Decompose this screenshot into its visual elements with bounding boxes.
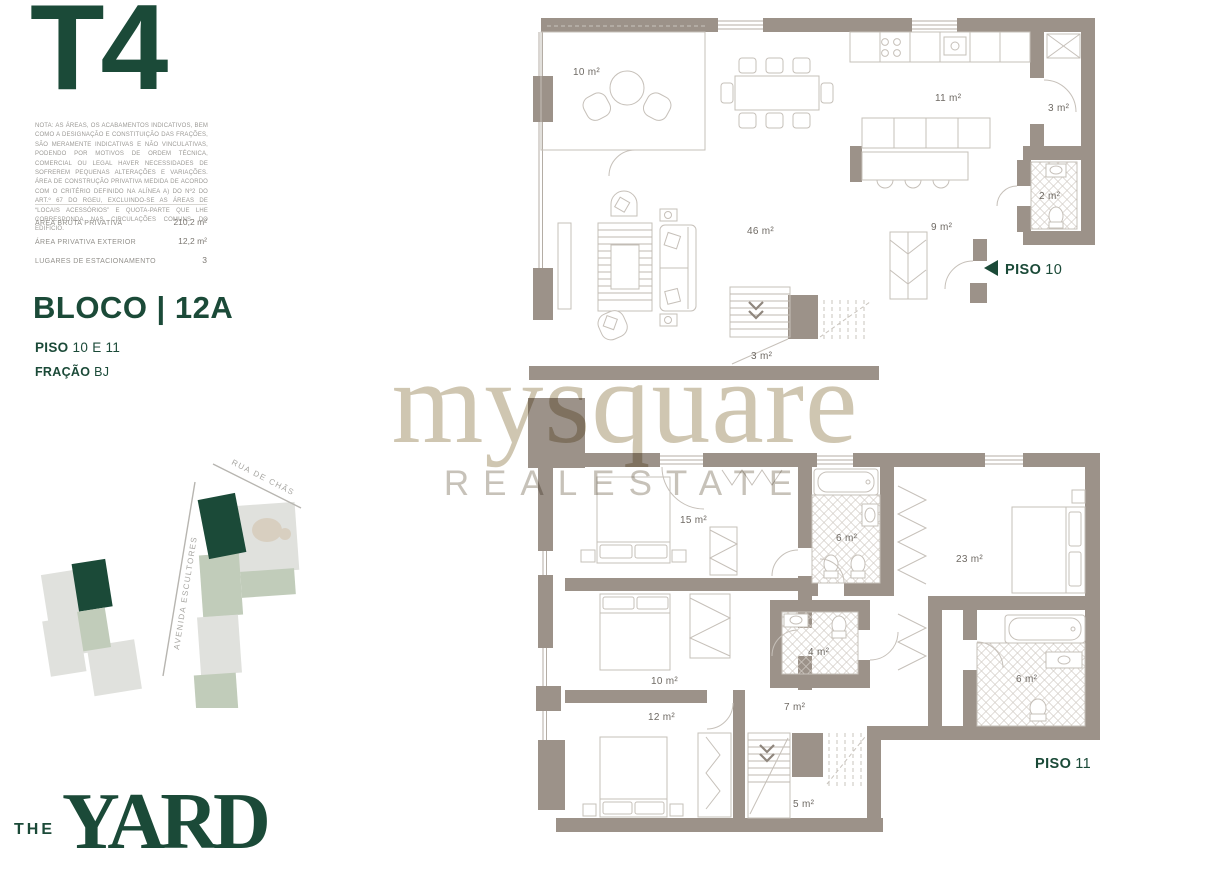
map-building-cluster-right bbox=[194, 493, 300, 708]
left-triangle-icon bbox=[984, 260, 998, 276]
area-label: ÁREA BRUTA PRIVATIVA bbox=[35, 220, 122, 227]
floorplan-sheet: T4 NOTA: AS ÁREAS, OS ACABAMENTOS INDICA… bbox=[0, 0, 1231, 881]
highlighted-building bbox=[198, 493, 247, 559]
map-street-avenida-escultores: AVENIDA ESCULTORES bbox=[163, 482, 199, 676]
room-label-living: 46 m² bbox=[747, 226, 774, 237]
divider-line bbox=[35, 204, 207, 205]
room-label-wc: 2 m² bbox=[1039, 191, 1061, 202]
armchair-icon bbox=[640, 90, 674, 124]
door-swing-arc bbox=[997, 186, 1017, 206]
stairs-up-icon bbox=[749, 302, 763, 318]
bedroom3: 12 m² bbox=[583, 703, 733, 817]
area-label: LUGARES DE ESTACIONAMENTO bbox=[35, 258, 156, 265]
floorplan-piso10: 10 m² 11 m² 3 m² bbox=[527, 6, 1107, 476]
room-label-bedroom2: 10 m² bbox=[651, 676, 678, 687]
room-label-stairs: 5 m² bbox=[793, 799, 815, 810]
side-table-icon bbox=[1072, 490, 1085, 503]
room-label-storage: 3 m² bbox=[1048, 103, 1070, 114]
door-swing-arc bbox=[609, 150, 635, 176]
wardrobe-icon bbox=[898, 614, 926, 670]
storage-room: 3 m² bbox=[1044, 34, 1080, 114]
piso10-marker: PISO10 bbox=[984, 260, 1062, 278]
room-label-bath2: 4 m² bbox=[808, 647, 830, 658]
bed-icon bbox=[1012, 507, 1085, 593]
room-label-ensuite: 6 m² bbox=[1016, 674, 1038, 685]
door-swing-arc bbox=[707, 703, 733, 729]
floor-line: PISO 10 E 11 bbox=[35, 340, 120, 355]
curtain-icon bbox=[722, 470, 782, 485]
wardrobe-icon bbox=[898, 486, 926, 584]
side-table-icon bbox=[670, 804, 683, 816]
living-room: 46 m² bbox=[558, 191, 774, 343]
floor-value: 10 E 11 bbox=[73, 340, 121, 355]
rug-icon bbox=[598, 223, 652, 311]
kitchen-counter-icon: 11 m² bbox=[850, 32, 1030, 188]
area-label: ÁREA PRIVATIVA EXTERIOR bbox=[35, 239, 136, 246]
block-title: BLOCO | 12A bbox=[33, 290, 233, 326]
area-value: 12,2 m² bbox=[178, 236, 207, 246]
room-label-bedroom1: 15 m² bbox=[680, 515, 707, 526]
entry-door-arc bbox=[945, 261, 973, 289]
bathtub-icon bbox=[814, 469, 878, 495]
bathroom2: 4 m² bbox=[782, 612, 898, 674]
floorplan-piso11: 15 m² 6 m² 23 m² bbox=[536, 446, 1106, 838]
brand-yard: YARD bbox=[62, 786, 266, 858]
piso10-marker-text: PISO10 bbox=[1005, 262, 1062, 278]
side-table-icon bbox=[660, 314, 677, 326]
site-map: RUA DE CHÃS AVENIDA ESCULTORES bbox=[35, 438, 305, 708]
fraction-line: FRAÇÃO BJ bbox=[35, 365, 109, 379]
toilet-icon bbox=[824, 555, 838, 573]
room-label-terrace: 10 m² bbox=[573, 67, 600, 78]
terrace: 10 m² bbox=[541, 26, 705, 176]
area-value: 210,2 m² bbox=[173, 217, 207, 227]
bathtub-icon bbox=[1005, 615, 1085, 643]
room-label-bedroom3: 12 m² bbox=[648, 712, 675, 723]
bathroom1: 6 m² bbox=[812, 469, 880, 583]
fraction-label: FRAÇÃO bbox=[35, 365, 90, 379]
bed-icon bbox=[597, 477, 670, 563]
floor-label: PISO bbox=[35, 340, 68, 355]
bidet-icon bbox=[851, 555, 865, 573]
sink-icon bbox=[862, 504, 878, 526]
hall: 9 m² bbox=[890, 222, 973, 299]
bed-icon bbox=[600, 594, 670, 670]
sink-icon bbox=[1046, 652, 1082, 668]
wardrobe-icon bbox=[698, 733, 731, 817]
area-row: ÁREA BRUTA PRIVATIVA 210,2 m² bbox=[35, 217, 207, 227]
wardrobe-icon bbox=[690, 594, 730, 658]
typology-title: T4 bbox=[30, 0, 164, 108]
door-swing-arc bbox=[772, 550, 798, 576]
ensuite-bathroom: 6 m² bbox=[977, 615, 1085, 726]
door-swing-arc bbox=[870, 632, 898, 660]
area-value: 3 bbox=[202, 255, 207, 265]
area-row: LUGARES DE ESTACIONAMENTO 3 bbox=[35, 255, 207, 265]
sideboard-icon bbox=[558, 223, 571, 309]
side-table-icon bbox=[581, 550, 595, 562]
dining-table-icon bbox=[721, 58, 833, 128]
side-table-icon bbox=[672, 550, 686, 562]
wc-room: 2 m² bbox=[997, 162, 1077, 229]
piso11-marker-text: PISO11 bbox=[1035, 756, 1091, 772]
room-label-stairs: 3 m² bbox=[751, 351, 773, 362]
side-table-icon bbox=[660, 209, 677, 221]
round-table-icon bbox=[610, 71, 644, 105]
sofa-icon bbox=[660, 225, 696, 311]
armchair-icon bbox=[580, 90, 614, 124]
room-label-master: 23 m² bbox=[956, 554, 983, 565]
bedroom2: 10 m² bbox=[600, 550, 798, 687]
bed-icon bbox=[600, 737, 667, 817]
room-label-hall: 7 m² bbox=[784, 702, 806, 713]
fraction-value: BJ bbox=[94, 365, 109, 379]
map-building-cluster-left bbox=[35, 556, 142, 702]
area-table: ÁREA BRUTA PRIVATIVA 210,2 m² ÁREA PRIVA… bbox=[35, 217, 207, 274]
bedroom1: 15 m² bbox=[581, 467, 782, 575]
side-table-icon bbox=[583, 804, 596, 816]
brand-logo: THE YARD bbox=[14, 786, 266, 858]
area-row: ÁREA PRIVATIVA EXTERIOR 12,2 m² bbox=[35, 236, 207, 246]
brand-the: THE bbox=[14, 821, 55, 839]
room-label-hall: 9 m² bbox=[931, 222, 953, 233]
room-label-bath1: 6 m² bbox=[836, 533, 858, 544]
room-label-kitchen: 11 m² bbox=[935, 93, 962, 104]
